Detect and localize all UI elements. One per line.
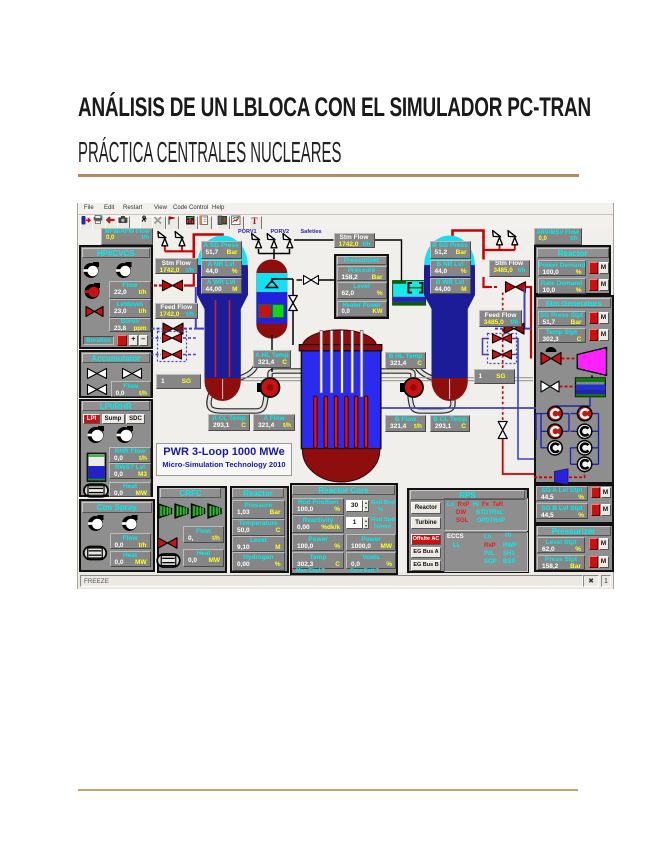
svg-text:T: T: [252, 216, 258, 226]
